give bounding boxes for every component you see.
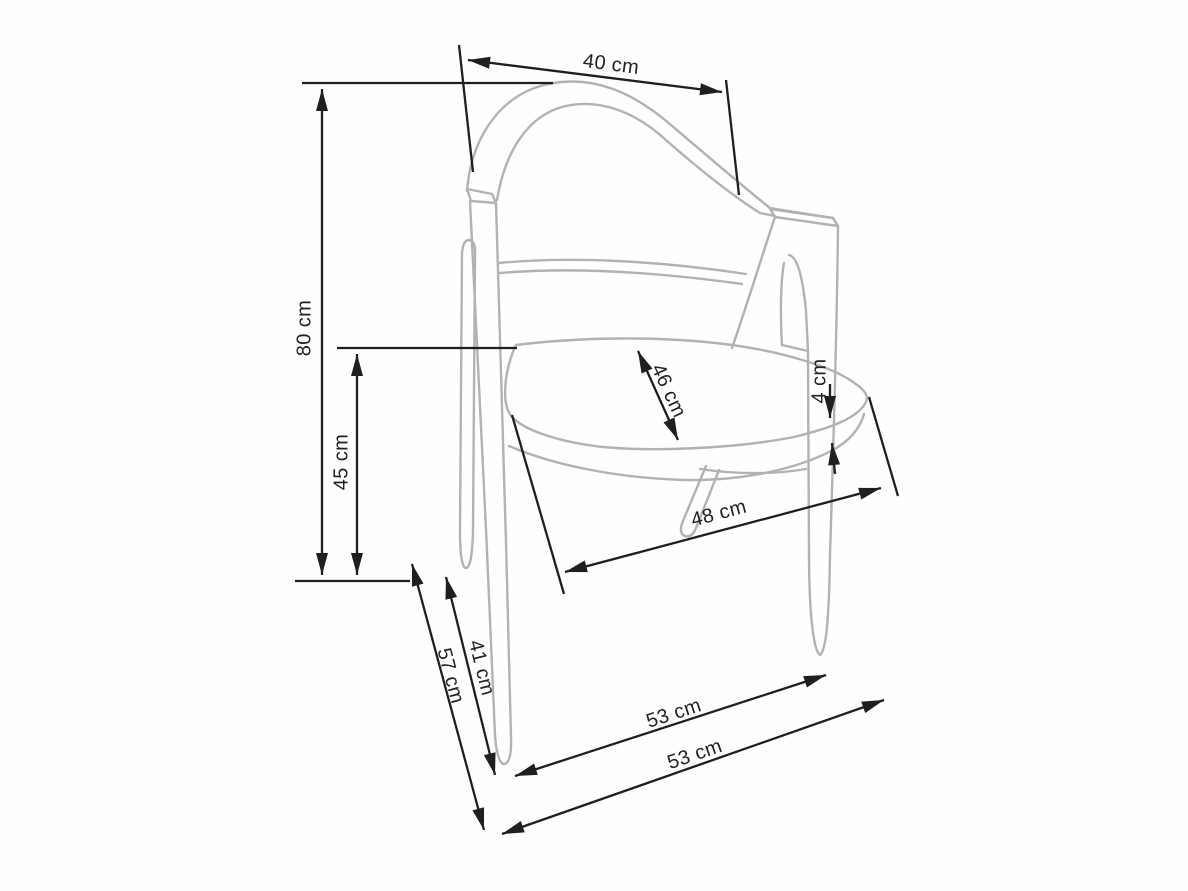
chair-dimension-diagram: 40 cm 80 cm 45 cm 46 cm 4 cm 48 cm 41 cm… (0, 0, 1188, 891)
backrest-inner-curve (497, 104, 775, 216)
dimension-label-80cm: 80 cm (294, 300, 317, 356)
diagram-graphics (0, 0, 1188, 891)
armrest-end-cap (770, 209, 838, 226)
extension-line-48cm-right (869, 397, 898, 496)
backrest-outer-curve (467, 81, 833, 218)
dimension-label-45cm: 45 cm (331, 434, 354, 490)
support-cutout (781, 255, 808, 351)
dimension-label-4cm: 4 cm (809, 359, 832, 404)
extension-line-48cm-left (512, 415, 564, 594)
back-rail-lower (500, 270, 742, 284)
seat-rim-lower (509, 414, 864, 480)
chair-drawing (460, 81, 867, 764)
extension-line-40cm-left (459, 45, 473, 172)
back-left-leg (460, 240, 475, 568)
front-right-leg (808, 226, 838, 655)
seat-base-edge (700, 469, 806, 473)
left-post-cap (467, 189, 496, 203)
